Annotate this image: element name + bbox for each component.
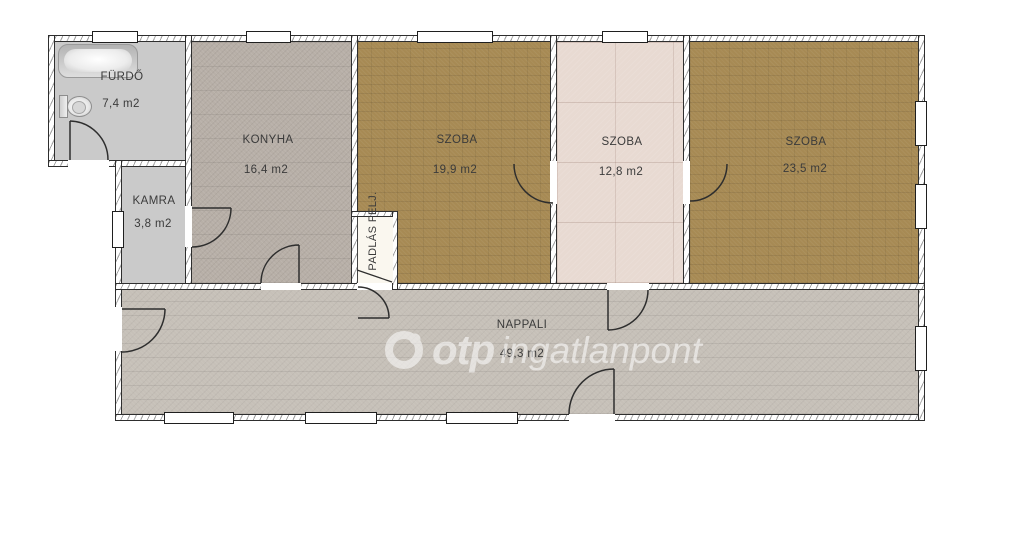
room-area-szoba3: 23,5 m2: [783, 163, 827, 175]
door-gap-szoba2-nappali: [607, 283, 649, 290]
door-gap-furdo: [68, 160, 109, 167]
room-label-nappali: NAPPALI: [497, 319, 548, 331]
window: [915, 326, 927, 371]
window: [305, 412, 377, 424]
door-gap-nappali-out: [569, 414, 615, 421]
door-gap-padlas: [357, 283, 392, 290]
wall-kitchen-left: [185, 35, 192, 290]
room-szoba2-floor: [557, 42, 683, 283]
window: [915, 101, 927, 146]
window: [92, 31, 138, 43]
room-label-furdo: FÜRDŐ: [101, 71, 144, 83]
toilet-icon: [67, 96, 92, 117]
room-area-szoba2: 12,8 m2: [599, 166, 643, 178]
window: [246, 31, 291, 43]
room-label-konyha: KONYHA: [243, 134, 294, 146]
room-area-kamra: 3,8 m2: [134, 218, 172, 230]
room-area-konyha: 16,4 m2: [244, 164, 288, 176]
door-gap-szoba1-szoba2: [550, 161, 557, 204]
wall-nappali-top: [115, 283, 925, 290]
door-gap-szoba2-szoba3: [683, 161, 690, 204]
window: [112, 211, 124, 248]
window: [164, 412, 234, 424]
room-label-szoba3: SZOBA: [786, 136, 827, 148]
room-area-furdo: 7,4 m2: [102, 98, 140, 110]
toilet-bowl-inner: [72, 101, 86, 114]
room-label-szoba2: SZOBA: [602, 136, 643, 148]
wall-bottom: [115, 414, 925, 421]
window: [446, 412, 518, 424]
floorplan-canvas: FÜRDŐ 7,4 m2 KAMRA 3,8 m2 KONYHA 16,4 m2…: [0, 0, 1024, 536]
wall-left-upper: [48, 35, 55, 167]
room-area-szoba1: 19,9 m2: [433, 164, 477, 176]
wall-left-lower: [115, 160, 122, 421]
room-konyha-floor: [192, 42, 351, 283]
window: [417, 31, 493, 43]
room-label-szoba1: SZOBA: [437, 134, 478, 146]
window: [915, 184, 927, 229]
bathtub-basin: [64, 49, 132, 72]
door-gap-konyha: [185, 206, 192, 247]
room-label-padlas: PADLÁS FELJ.: [367, 191, 379, 270]
room-label-kamra: KAMRA: [133, 195, 176, 207]
room-area-nappali: 49,3 m2: [500, 348, 544, 360]
window: [602, 31, 648, 43]
door-gap-konyha-nappali: [261, 283, 301, 290]
door-gap-entrance: [115, 307, 122, 351]
